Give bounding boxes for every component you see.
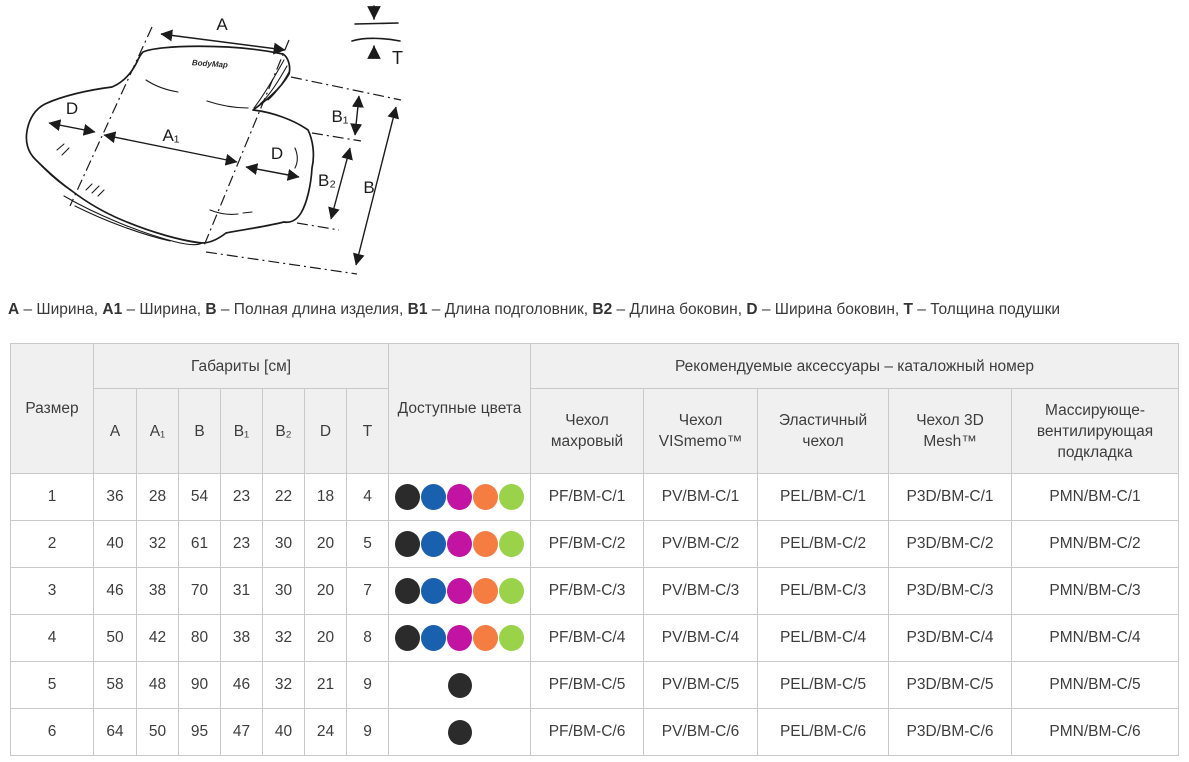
dimension-cell: 28 <box>137 474 179 521</box>
legend-term: T <box>904 301 913 318</box>
available-colors-cell <box>389 709 531 756</box>
dimension-cell: 46 <box>94 568 137 615</box>
dimension-cell: 90 <box>179 662 221 709</box>
label-B1: B₁ <box>331 107 348 126</box>
black-color-dot <box>395 578 420 604</box>
green-color-dot <box>499 484 524 510</box>
orange-color-dot <box>473 578 498 604</box>
available-colors-cell <box>389 615 531 662</box>
orange-color-dot <box>473 625 498 651</box>
dimension-cell: 32 <box>263 615 305 662</box>
label-D-right: D <box>271 144 283 163</box>
dimension-cell: 50 <box>94 615 137 662</box>
dimension-cell: 38 <box>137 568 179 615</box>
legend-term: B2 <box>592 301 612 318</box>
accessory-code-cell: PV/BM-C/6 <box>644 709 758 756</box>
accessory-code-cell: PMN/BM-C/4 <box>1012 615 1179 662</box>
accessory-code-cell: PEL/BM-C/3 <box>758 568 889 615</box>
black-color-dot <box>395 484 420 510</box>
col-header-dim-7: T <box>347 389 389 474</box>
col-group-accessories: Рекомендуемые аксессуары – каталожный но… <box>531 344 1179 389</box>
color-dots <box>394 720 525 745</box>
dimension-cell: 20 <box>305 615 347 662</box>
size-cell: 4 <box>11 615 94 662</box>
legend-item: A – Ширина, <box>8 301 102 318</box>
label-B: B <box>363 178 374 197</box>
dimension-cell: 23 <box>221 521 263 568</box>
col-header-accessory-2: Чехол VISmemo™ <box>644 389 758 474</box>
accessory-code-cell: PV/BM-C/1 <box>644 474 758 521</box>
dimension-cell: 7 <box>347 568 389 615</box>
accessory-code-cell: PEL/BM-C/1 <box>758 474 889 521</box>
accessory-code-cell: PMN/BM-C/5 <box>1012 662 1179 709</box>
col-header-dim-3: B <box>179 389 221 474</box>
dimension-cell: 46 <box>221 662 263 709</box>
size-cell: 5 <box>11 662 94 709</box>
dimension-cell: 48 <box>137 662 179 709</box>
accessory-code-cell: PV/BM-C/4 <box>644 615 758 662</box>
accessory-code-cell: PEL/BM-C/5 <box>758 662 889 709</box>
accessory-code-cell: PMN/BM-C/6 <box>1012 709 1179 756</box>
blue-color-dot <box>421 578 446 604</box>
dimension-cell: 30 <box>263 521 305 568</box>
accessory-code-cell: PV/BM-C/3 <box>644 568 758 615</box>
col-header-size: Размер <box>11 344 94 474</box>
blue-color-dot <box>421 531 446 557</box>
col-header-accessory-4: Чехол 3D Mesh™ <box>889 389 1012 474</box>
col-header-dim-6: D <box>305 389 347 474</box>
dimension-cell: 36 <box>94 474 137 521</box>
dimension-cell: 31 <box>221 568 263 615</box>
label-B2: B₂ <box>318 171 336 190</box>
arrow-B1 <box>355 96 359 135</box>
legend-item: T – Толщина подушки <box>904 301 1061 318</box>
green-color-dot <box>499 625 524 651</box>
accessory-code-cell: PV/BM-C/5 <box>644 662 758 709</box>
legend-term: B1 <box>408 301 428 318</box>
dimension-cell: 30 <box>263 568 305 615</box>
col-header-dim-2: A₁ <box>137 389 179 474</box>
product-spec-page: { "diagram": { "logo": "BodyMap", "label… <box>0 0 1189 762</box>
color-dots <box>394 578 525 604</box>
legend-item: B – Полная длина изделия, <box>205 301 407 318</box>
accessory-code-cell: PMN/BM-C/1 <box>1012 474 1179 521</box>
accessory-code-cell: PF/BM-C/5 <box>531 662 644 709</box>
col-group-dimensions: Габариты [см] <box>94 344 389 389</box>
col-header-colors: Доступные цвета <box>389 344 531 474</box>
dimension-cell: 47 <box>221 709 263 756</box>
col-header-accessory-3: Эластичный чехол <box>758 389 889 474</box>
accessory-code-cell: PF/BM-C/6 <box>531 709 644 756</box>
col-header-dim-1: A <box>94 389 137 474</box>
accessory-code-cell: P3D/BM-C/6 <box>889 709 1012 756</box>
table-row: 34638703130207PF/BM-C/3PV/BM-C/3PEL/BM-C… <box>11 568 1179 615</box>
magenta-color-dot <box>447 484 472 510</box>
legend-item: B1 – Длина подголовник, <box>408 301 593 318</box>
accessory-code-cell: PEL/BM-C/2 <box>758 521 889 568</box>
magenta-color-dot <box>447 578 472 604</box>
accessory-code-cell: PF/BM-C/3 <box>531 568 644 615</box>
legend-item: D – Ширина боковин, <box>746 301 903 318</box>
available-colors-cell <box>389 521 531 568</box>
legend-item: B2 – Длина боковин, <box>592 301 746 318</box>
accessory-code-cell: PEL/BM-C/4 <box>758 615 889 662</box>
label-A: A <box>216 15 228 34</box>
dimension-cell: 80 <box>179 615 221 662</box>
green-color-dot <box>499 531 524 557</box>
size-cell: 2 <box>11 521 94 568</box>
accessory-code-cell: P3D/BM-C/5 <box>889 662 1012 709</box>
dimension-cell: 38 <box>221 615 263 662</box>
accessory-code-cell: P3D/BM-C/1 <box>889 474 1012 521</box>
blue-color-dot <box>421 484 446 510</box>
dimension-legend: A – Ширина, A1 – Ширина, B – Полная длин… <box>8 300 1186 320</box>
magenta-color-dot <box>447 531 472 557</box>
accessory-code-cell: P3D/BM-C/2 <box>889 521 1012 568</box>
label-D-left: D <box>66 99 78 118</box>
size-cell: 3 <box>11 568 94 615</box>
orange-color-dot <box>473 484 498 510</box>
accessory-code-cell: P3D/BM-C/3 <box>889 568 1012 615</box>
spec-table: Размер Габариты [см] Доступные цвета Рек… <box>10 343 1179 756</box>
dimension-cell: 40 <box>94 521 137 568</box>
accessory-code-cell: PEL/BM-C/6 <box>758 709 889 756</box>
dimension-cell: 23 <box>221 474 263 521</box>
green-color-dot <box>499 578 524 604</box>
available-colors-cell <box>389 662 531 709</box>
dimension-cell: 8 <box>347 615 389 662</box>
dimension-cell: 20 <box>305 521 347 568</box>
label-T: T <box>392 48 403 68</box>
col-header-accessory-5: Массирующе-вентилирующая подкладка <box>1012 389 1179 474</box>
available-colors-cell <box>389 474 531 521</box>
magenta-color-dot <box>447 625 472 651</box>
legend-term: A1 <box>102 301 122 318</box>
dimension-cell: 32 <box>263 662 305 709</box>
pillow-drawing: BodyMap A D A₁ D B₁ B₂ B T <box>0 0 455 295</box>
dimension-cell: 64 <box>94 709 137 756</box>
dimension-cell: 58 <box>94 662 137 709</box>
dimension-cell: 24 <box>305 709 347 756</box>
orange-color-dot <box>473 531 498 557</box>
accessory-code-cell: PMN/BM-C/3 <box>1012 568 1179 615</box>
accessory-code-cell: PV/BM-C/2 <box>644 521 758 568</box>
color-dots <box>394 484 525 510</box>
accessory-code-cell: PF/BM-C/4 <box>531 615 644 662</box>
dimension-cell: 40 <box>263 709 305 756</box>
table-row: 24032612330205PF/BM-C/2PV/BM-C/2PEL/BM-C… <box>11 521 1179 568</box>
table-row: 45042803832208PF/BM-C/4PV/BM-C/4PEL/BM-C… <box>11 615 1179 662</box>
dimension-cell: 5 <box>347 521 389 568</box>
black-color-dot <box>395 625 420 651</box>
col-header-accessory-1: Чехол махровый <box>531 389 644 474</box>
label-A1: A₁ <box>162 126 179 145</box>
legend-item: A1 – Ширина, <box>102 301 205 318</box>
dimension-cell: 70 <box>179 568 221 615</box>
dimension-cell: 50 <box>137 709 179 756</box>
table-row: 13628542322184PF/BM-C/1PV/BM-C/1PEL/BM-C… <box>11 474 1179 521</box>
accessory-code-cell: PF/BM-C/1 <box>531 474 644 521</box>
dimension-cell: 9 <box>347 709 389 756</box>
arrow-B <box>356 107 396 265</box>
accessory-code-cell: PF/BM-C/2 <box>531 521 644 568</box>
dimension-cell: 95 <box>179 709 221 756</box>
black-color-dot <box>448 673 472 698</box>
color-dots <box>394 531 525 557</box>
legend-term: A <box>8 301 19 318</box>
table-row: 66450954740249PF/BM-C/6PV/BM-C/6PEL/BM-C… <box>11 709 1179 756</box>
black-color-dot <box>448 720 472 745</box>
size-cell: 6 <box>11 709 94 756</box>
dimension-cell: 21 <box>305 662 347 709</box>
dimension-cell: 61 <box>179 521 221 568</box>
accessory-code-cell: PMN/BM-C/2 <box>1012 521 1179 568</box>
dimension-cell: 20 <box>305 568 347 615</box>
blue-color-dot <box>421 625 446 651</box>
dimension-cell: 42 <box>137 615 179 662</box>
dimension-cell: 32 <box>137 521 179 568</box>
col-header-dim-4: B₁ <box>221 389 263 474</box>
dimension-cell: 18 <box>305 474 347 521</box>
col-header-dim-5: B₂ <box>263 389 305 474</box>
table-row: 55848904632219PF/BM-C/5PV/BM-C/5PEL/BM-C… <box>11 662 1179 709</box>
color-dots <box>394 673 525 698</box>
dimension-cell: 22 <box>263 474 305 521</box>
available-colors-cell <box>389 568 531 615</box>
color-dots <box>394 625 525 651</box>
legend-term: D <box>746 301 757 318</box>
accessory-code-cell: P3D/BM-C/4 <box>889 615 1012 662</box>
dimension-cell: 4 <box>347 474 389 521</box>
dimension-diagram: BodyMap A D A₁ D B₁ B₂ B T <box>0 0 455 295</box>
dimension-cell: 54 <box>179 474 221 521</box>
legend-term: B <box>205 301 216 318</box>
black-color-dot <box>395 531 420 557</box>
size-cell: 1 <box>11 474 94 521</box>
dimension-cell: 9 <box>347 662 389 709</box>
